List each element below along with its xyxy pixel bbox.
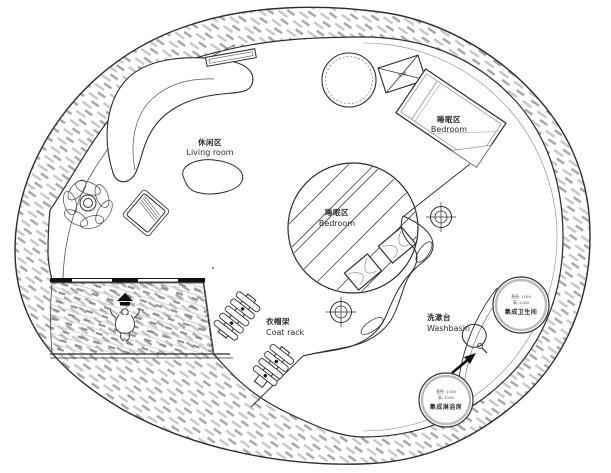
bathroom-pod: 直径: 1100 高: 2100 集成卫生间	[493, 277, 549, 333]
loft-label-en: Bedroom	[319, 219, 355, 228]
porch-top-wall	[50, 278, 205, 283]
bathroom-pod-height: 高: 2100	[513, 300, 530, 305]
bathroom-pod-diameter: 直径: 1100	[511, 294, 531, 299]
living-room-label-en: Living room	[186, 148, 233, 157]
washbasin-label-en: Washbasin	[427, 324, 470, 333]
shower-pod-diameter: 直径: 1100	[436, 389, 456, 394]
shower-pod: 直径: 1100 高: 2100 集成淋浴房	[419, 373, 473, 427]
floor-plan: 空调 睡眠区 Bedroom 睡眠区 Bedroom	[0, 0, 611, 473]
floor-plan-canvas: 空调 睡眠区 Bedroom 睡眠区 Bedroom	[0, 0, 611, 473]
bedroom-upper-label-cn: 睡眠区	[437, 114, 461, 124]
bedroom-upper-label-en: Bedroom	[431, 125, 467, 134]
loft-label-cn: 睡眠区	[325, 207, 349, 217]
washbasin-label-cn: 洗漱台	[427, 312, 451, 322]
living-room-label-cn: 休闲区	[197, 137, 222, 147]
coat-rack-label-cn: 衣帽架	[266, 316, 290, 326]
porch-window-1	[72, 279, 112, 282]
shower-pod-name: 集成淋浴房	[429, 403, 463, 411]
floor-dot	[212, 267, 214, 269]
coat-rack-label-en: Coat rack	[266, 328, 305, 337]
shower-pod-height: 高: 2100	[438, 395, 455, 400]
bathroom-pod-name: 集成卫生间	[504, 308, 538, 316]
porch-window-2	[138, 279, 178, 282]
